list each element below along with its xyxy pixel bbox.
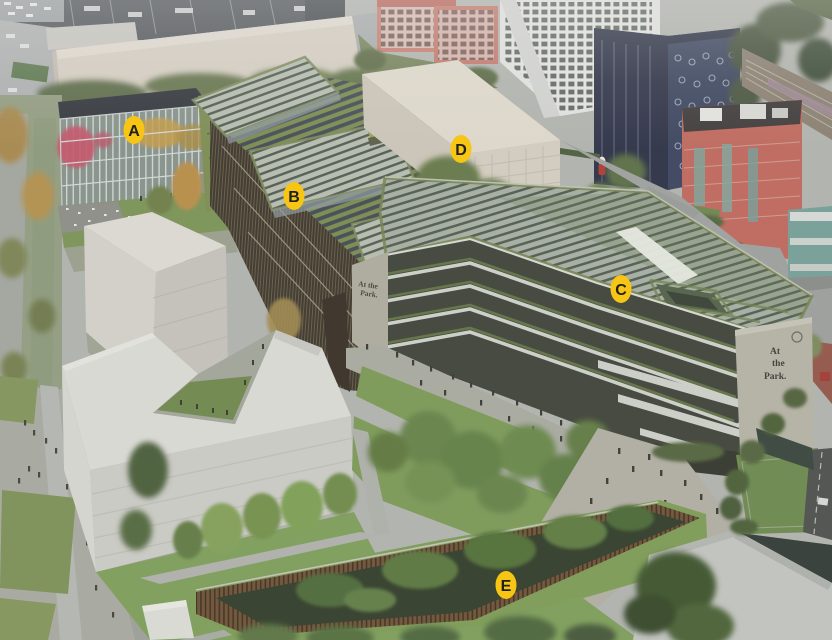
svg-text:C: C <box>615 282 627 299</box>
svg-text:A: A <box>128 123 140 140</box>
svg-text:E: E <box>501 578 512 595</box>
svg-text:D: D <box>455 142 467 159</box>
svg-text:B: B <box>288 189 300 206</box>
